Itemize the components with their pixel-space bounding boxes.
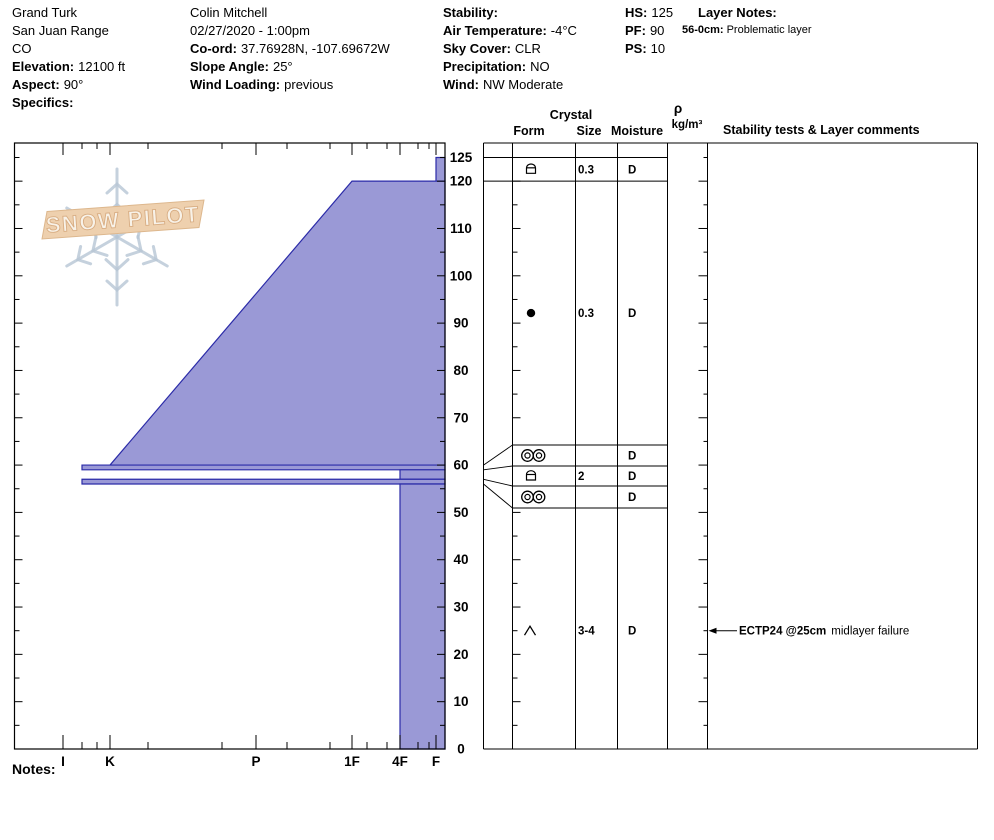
depth-tick-label-110: 110 bbox=[450, 221, 472, 236]
depth-tick-label-90: 90 bbox=[453, 316, 468, 331]
column-header-size: Size bbox=[576, 124, 601, 138]
grain-form-icon-rounded-grains bbox=[527, 309, 535, 317]
column-header-density-units: kg/m³ bbox=[672, 119, 703, 131]
column-header-moisture: Moisture bbox=[611, 124, 663, 138]
snow-layer-57-56 bbox=[82, 479, 445, 484]
hardness-tick-label-1F: 1F bbox=[344, 754, 360, 769]
depth-tick-label-20: 20 bbox=[453, 647, 468, 662]
grain-size-125-120: 0.3 bbox=[578, 164, 594, 176]
grain-form-icon-depth-hoar bbox=[525, 626, 536, 635]
grain-size-120-60: 0.3 bbox=[578, 308, 594, 320]
depth-tick-label-100: 100 bbox=[450, 268, 473, 283]
notes-label: Notes: bbox=[12, 761, 56, 777]
snow-layer-56-0 bbox=[400, 484, 445, 749]
column-header-density-symbol: ρ bbox=[674, 101, 682, 116]
axis-line bbox=[484, 445, 513, 465]
grain-size-59-57: 2 bbox=[578, 471, 584, 483]
axis-line bbox=[484, 479, 513, 486]
snow-layer-60-59 bbox=[82, 465, 445, 470]
depth-tick-label-80: 80 bbox=[453, 363, 468, 378]
snowpilot-logo bbox=[61, 169, 172, 305]
column-header-crystal: Crystal bbox=[550, 108, 592, 122]
depth-tick-label-70: 70 bbox=[453, 410, 468, 425]
hardness-tick-label-4F: 4F bbox=[392, 754, 408, 769]
snow-layer-125-120 bbox=[436, 158, 445, 182]
snowflake-icon bbox=[61, 169, 172, 305]
column-header-form: Form bbox=[513, 124, 544, 138]
depth-tick-label-10: 10 bbox=[453, 694, 468, 709]
snow-layer-59-57 bbox=[400, 470, 445, 479]
depth-tick-label-40: 40 bbox=[453, 552, 468, 567]
grain-size-56-0: 3-4 bbox=[578, 626, 595, 638]
depth-tick-label-60: 60 bbox=[453, 458, 468, 473]
grain-form-icon-rounding-faceted bbox=[527, 471, 536, 480]
grain-form-icon-melt-freeze-crust bbox=[522, 491, 545, 503]
hardness-tick-label-P: P bbox=[251, 754, 260, 769]
grain-moisture-59-57: D bbox=[628, 471, 636, 483]
stability-test-note: ECTP24 @25cmmidlayer failure bbox=[739, 626, 909, 638]
test-arrow-head bbox=[709, 628, 717, 634]
grain-moisture-125-120: D bbox=[628, 164, 636, 176]
depth-tick-label-120: 120 bbox=[450, 174, 473, 189]
grain-moisture-57-56: D bbox=[628, 492, 636, 504]
hardness-tick-label-F: F bbox=[432, 754, 440, 769]
hardness-tick-label-K: K bbox=[105, 754, 115, 769]
column-header-stability-tests: Stability tests & Layer comments bbox=[723, 123, 920, 137]
depth-tick-label-125: 125 bbox=[450, 150, 473, 165]
hardness-tick-label-I: I bbox=[61, 754, 65, 769]
depth-tick-label-0: 0 bbox=[457, 742, 465, 757]
snow-profile-figure: SNOW PILOTIKP1F4FF1251201101009080706050… bbox=[0, 0, 994, 840]
depth-tick-label-30: 30 bbox=[453, 600, 468, 615]
depth-tick-label-50: 50 bbox=[453, 505, 468, 520]
grain-form-icon-melt-freeze-crust bbox=[522, 450, 545, 462]
axis-line bbox=[484, 466, 513, 470]
grain-form-icon-rounding-faceted bbox=[527, 164, 536, 173]
axis-line bbox=[484, 484, 513, 508]
grain-moisture-120-60: D bbox=[628, 308, 636, 320]
grain-moisture-60-59: D bbox=[628, 451, 636, 463]
grain-moisture-56-0: D bbox=[628, 626, 636, 638]
